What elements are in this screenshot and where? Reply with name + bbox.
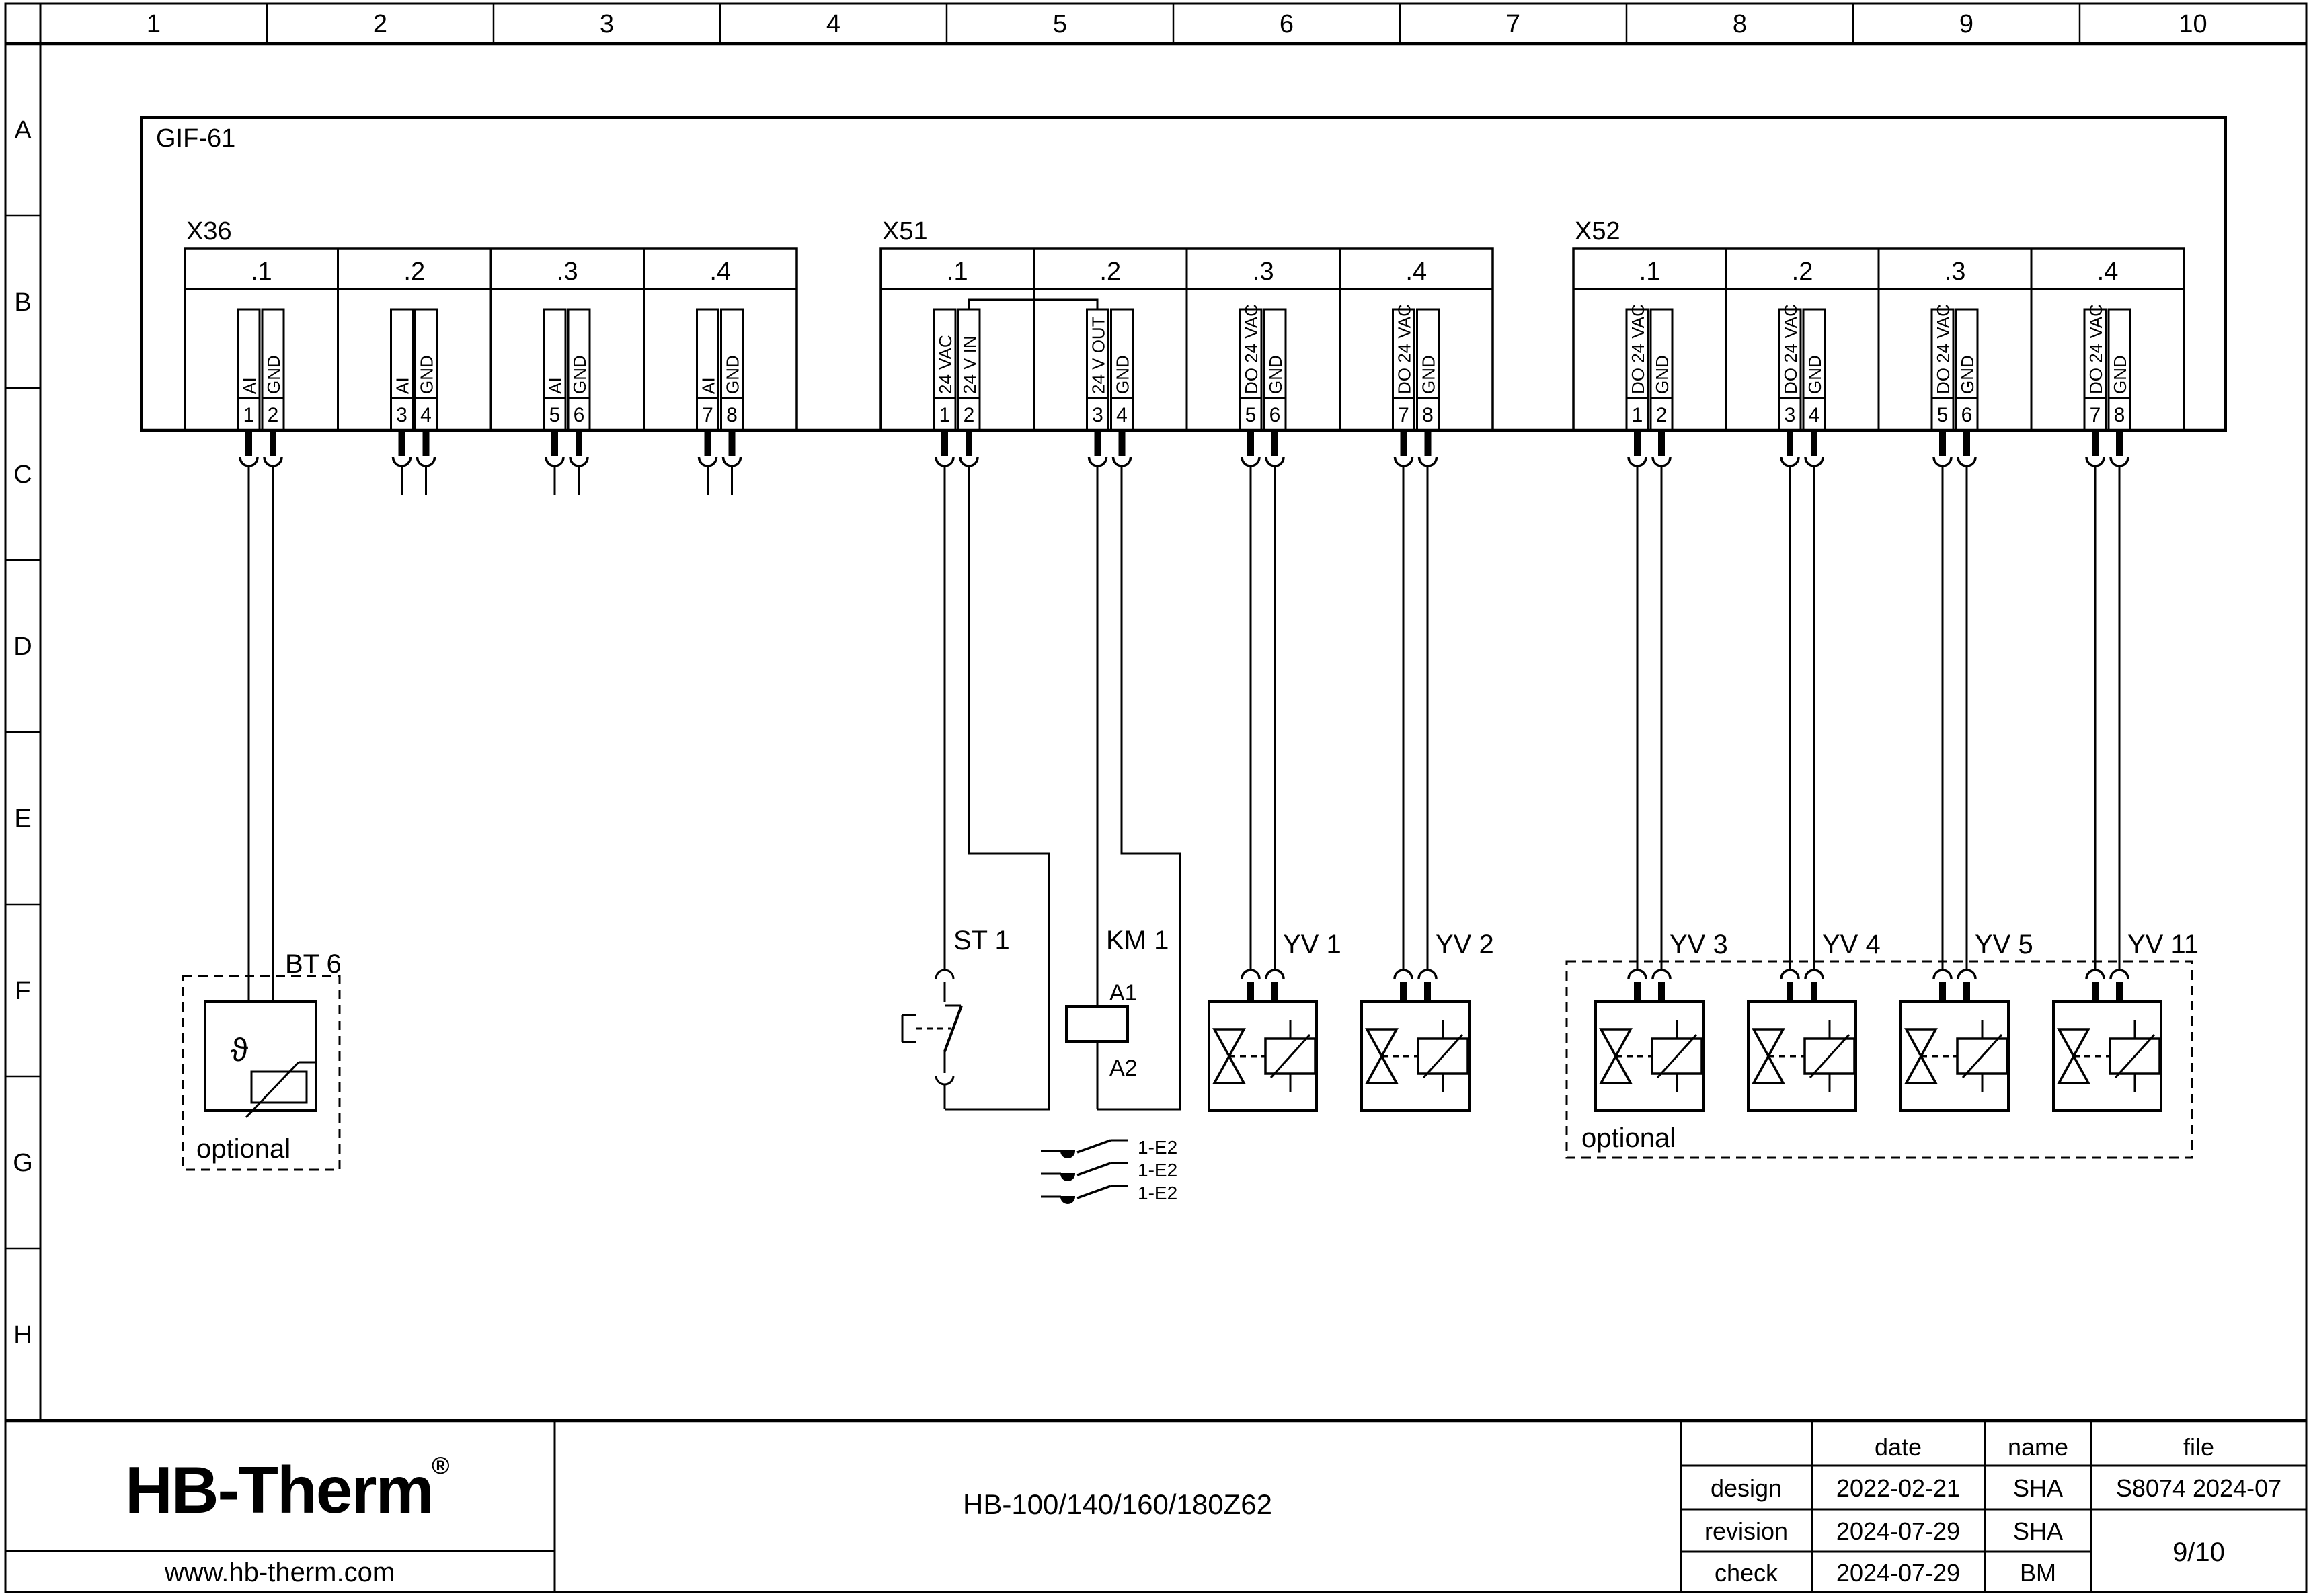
female-socket — [936, 457, 953, 466]
km1-aux-contact: 1-E2 — [1041, 1183, 1177, 1203]
pin-signal: DO 24 VAC — [1395, 304, 1415, 394]
pin-signal: GND — [417, 355, 437, 394]
optional-note: optional — [1581, 1123, 1676, 1153]
row-header: B — [14, 288, 31, 317]
section-label: .1 — [1639, 257, 1661, 286]
connector-label: X51 — [882, 217, 928, 245]
pin-number: 5 — [549, 404, 561, 426]
pin-signal: GND — [2110, 355, 2130, 394]
connector-blocks: X36.1AI1GND2.2AI3GND4.3AI5GND6.4AI7GND8X… — [185, 217, 2184, 495]
pin-signal: DO 24 VAC — [1780, 304, 1801, 394]
female-socket — [1629, 970, 1646, 979]
row-header: H — [13, 1321, 32, 1349]
valve-label: YV 1 — [1283, 930, 1341, 959]
contact-blade — [1077, 1163, 1111, 1175]
female-socket — [393, 457, 411, 466]
solenoid-slash — [1810, 1035, 1849, 1078]
female-socket — [936, 970, 953, 979]
thermistor-slash — [246, 1062, 299, 1117]
pin-number: 6 — [574, 404, 585, 426]
row-header: A — [14, 116, 32, 145]
valve-label: YV 2 — [1436, 930, 1494, 959]
connector-x51: X51.124 VAC124 V IN2.224 V OUT3GND4.3DO … — [881, 217, 1493, 466]
column-header: 1 — [147, 10, 161, 38]
female-socket — [570, 457, 588, 466]
female-socket — [960, 457, 978, 466]
section-label: .3 — [557, 257, 578, 286]
pin-signal: AI — [699, 377, 719, 394]
connector-label: X52 — [1575, 217, 1620, 245]
km1-aux-contact: 1-E2 — [1041, 1160, 1177, 1181]
bt6-label: BT 6 — [285, 949, 342, 979]
female-socket — [546, 457, 563, 466]
female-socket — [1958, 457, 1975, 466]
female-socket — [240, 457, 258, 466]
pin-signal: AI — [393, 377, 413, 394]
pin-number: 1 — [1632, 404, 1643, 426]
pin-number: 7 — [702, 404, 713, 426]
pin-signal: DO 24 VAC — [1933, 304, 1953, 394]
pin-number: 1 — [939, 404, 951, 426]
solenoid-slash — [2115, 1035, 2154, 1078]
pin-number: 3 — [1785, 404, 1796, 426]
female-socket — [1113, 457, 1131, 466]
row-label-revision: revision — [1705, 1517, 1788, 1545]
contact-blade — [1077, 1140, 1111, 1152]
km1-contact-refs: 1-E21-E21-E2 — [1041, 1137, 1177, 1203]
check-date: 2024-07-29 — [1836, 1559, 1960, 1587]
bt6-optional-note: optional — [196, 1134, 290, 1164]
column-header: 6 — [1280, 10, 1294, 38]
female-socket — [1934, 970, 1951, 979]
gif61-box — [141, 118, 2226, 430]
st1-thermostat: ST 1 — [902, 466, 1049, 1109]
revision-name: SHA — [2013, 1517, 2063, 1545]
column-header: 8 — [1733, 10, 1747, 38]
km1-coil — [1066, 1006, 1128, 1041]
col-header-name: name — [2008, 1433, 2068, 1461]
column-header: 7 — [1506, 10, 1520, 38]
pin-signal: GND — [1652, 355, 1672, 394]
section-label: .1 — [947, 257, 968, 286]
pin-number: 4 — [1116, 404, 1128, 426]
pin-signal: DO 24 VAC — [1628, 304, 1648, 394]
st1-label: ST 1 — [953, 926, 1010, 955]
contact-bridge — [1061, 1197, 1074, 1203]
section-label: .4 — [709, 257, 731, 286]
valve-5: YV 5 — [1901, 466, 2033, 1111]
female-socket — [2086, 457, 2104, 466]
pin-signal: GND — [264, 355, 284, 394]
column-header: 5 — [1053, 10, 1067, 38]
pin-signal: GND — [570, 355, 590, 394]
female-socket — [1419, 970, 1436, 979]
row-label-design: design — [1711, 1474, 1782, 1502]
pin-signal: GND — [1805, 355, 1825, 394]
row-header: E — [14, 805, 31, 833]
female-socket — [1958, 970, 1975, 979]
column-header: 4 — [826, 10, 840, 38]
gif61-module: GIF-61 — [141, 118, 2226, 430]
row-header: G — [13, 1149, 33, 1177]
connector-label: X36 — [186, 217, 232, 245]
female-socket — [1242, 457, 1259, 466]
section-label: .1 — [251, 257, 272, 286]
pin-number: 5 — [1937, 404, 1949, 426]
pin-signal: GND — [1265, 355, 1286, 394]
title-block: HB-Therm ® www.hb-therm.com HB-100/140/1… — [5, 1421, 2306, 1592]
female-socket — [2086, 970, 2104, 979]
pin-number: 5 — [1245, 404, 1257, 426]
column-header: 10 — [2179, 10, 2207, 38]
pin-number: 4 — [1809, 404, 1820, 426]
registered-mark: ® — [432, 1451, 449, 1479]
female-socket — [1266, 457, 1284, 466]
gif61-label: GIF-61 — [156, 124, 235, 153]
theta-symbol: ϑ — [231, 1033, 248, 1068]
row-header: D — [13, 633, 32, 661]
valve-label: YV 4 — [1822, 930, 1881, 959]
pin-number: 6 — [1269, 404, 1281, 426]
section-label: .3 — [1253, 257, 1274, 286]
valve-label: YV 3 — [1670, 930, 1728, 959]
revision-date: 2024-07-29 — [1836, 1517, 1960, 1545]
connector-x52: X52.1DO 24 VAC1GND2.2DO 24 VAC3GND4.3DO … — [1573, 217, 2184, 466]
design-date: 2022-02-21 — [1836, 1474, 1960, 1502]
female-socket — [1266, 970, 1284, 979]
col-header-date: date — [1875, 1433, 1922, 1461]
page-number: 9/10 — [2172, 1538, 2225, 1567]
solenoid-slash — [1657, 1035, 1696, 1078]
pin-number: 8 — [2114, 404, 2125, 426]
file-value: S8074 2024-07 — [2116, 1474, 2281, 1502]
section-label: .2 — [403, 257, 425, 286]
female-socket — [1629, 457, 1646, 466]
km1-return-wire — [1097, 466, 1180, 1109]
pin-number: 4 — [420, 404, 432, 426]
section-label: .4 — [1405, 257, 1427, 286]
solenoid-valves: YV 1YV 2YV 3YV 4YV 5YV 11 — [1209, 466, 2199, 1111]
section-label: .3 — [1945, 257, 1966, 286]
solenoid-slash — [1271, 1035, 1310, 1078]
pin-number: 3 — [396, 404, 407, 426]
female-socket — [1419, 457, 1437, 466]
contact-ref-label: 1-E2 — [1138, 1183, 1177, 1203]
section-label: .4 — [2097, 257, 2119, 286]
valve-1: YV 1 — [1209, 466, 1341, 1111]
female-socket — [2111, 457, 2128, 466]
column-header: 9 — [1959, 10, 1973, 38]
hb-therm-logo: HB-Therm — [125, 1453, 433, 1527]
pin-number: 6 — [1961, 404, 1973, 426]
check-name: BM — [2020, 1559, 2056, 1587]
pin-number: 1 — [243, 404, 255, 426]
pin-number: 2 — [1656, 404, 1668, 426]
female-socket — [1653, 457, 1670, 466]
female-socket — [264, 457, 282, 466]
valve-3: YV 3 — [1596, 466, 1728, 1111]
contact-ref-label: 1-E2 — [1138, 1160, 1177, 1181]
female-socket — [1934, 457, 1951, 466]
pin-signal: AI — [545, 377, 565, 394]
female-socket — [1089, 457, 1107, 466]
column-header: 2 — [373, 10, 387, 38]
contact-bridge — [1061, 1151, 1074, 1158]
pin-signal: 24 V IN — [959, 335, 980, 394]
col-header-file: file — [2183, 1433, 2214, 1461]
female-socket — [1242, 970, 1259, 979]
female-socket — [723, 457, 741, 466]
female-socket — [1805, 970, 1823, 979]
bt6-box — [205, 1002, 316, 1111]
document-title: HB-100/140/160/180Z62 — [963, 1488, 1272, 1520]
km1-aux-contact: 1-E2 — [1041, 1137, 1177, 1158]
female-socket — [2111, 970, 2128, 979]
female-socket — [418, 457, 435, 466]
pin-signal: DO 24 VAC — [2086, 304, 2106, 394]
contact-bridge — [1061, 1174, 1074, 1181]
female-socket — [699, 457, 717, 466]
pin-signal: GND — [1113, 355, 1133, 394]
ruler-labels: 12345678910ABCDEFGH — [5, 3, 2207, 1349]
valve-label: YV 11 — [2127, 930, 2199, 959]
pin-number: 7 — [1398, 404, 1409, 426]
contact-blade — [945, 1006, 962, 1051]
pin-signal: AI — [239, 377, 260, 394]
female-socket — [1781, 457, 1799, 466]
pin-signal: DO 24 VAC — [1241, 304, 1261, 394]
pin-signal: GND — [1419, 355, 1439, 394]
outer-border — [5, 3, 2306, 1592]
pin-signal: 24 V OUT — [1089, 316, 1109, 394]
solenoid-slash — [1423, 1035, 1462, 1078]
female-socket — [936, 1076, 953, 1084]
section-label: .2 — [1099, 257, 1121, 286]
contact-ref-label: 1-E2 — [1138, 1137, 1177, 1158]
pin-number: 3 — [1092, 404, 1103, 426]
pin-number: 2 — [964, 404, 975, 426]
thermistor-symbol — [251, 1072, 307, 1103]
pin-number: 8 — [726, 404, 738, 426]
pin-signal: 24 VAC — [935, 335, 955, 394]
design-name: SHA — [2013, 1474, 2063, 1502]
valve-6: YV 11 — [2053, 466, 2199, 1111]
valve-2: YV 2 — [1362, 466, 1494, 1111]
contact-blade — [1077, 1186, 1111, 1198]
connector-x36: X36.1AI1GND2.2AI3GND4.3AI5GND6.4AI7GND8 — [185, 217, 797, 495]
valve-4: YV 4 — [1748, 466, 1881, 1111]
pin-number: 2 — [268, 404, 279, 426]
km1-a1-terminal: A1 — [1109, 980, 1138, 1006]
row-header: F — [15, 977, 30, 1005]
drawing-frame: 12345678910ABCDEFGH — [5, 3, 2306, 1592]
pin-signal: GND — [1957, 355, 1977, 394]
row-label-check: check — [1715, 1559, 1778, 1587]
bt6-sensor: BT 6 ϑ optional — [183, 466, 342, 1170]
female-socket — [1653, 970, 1670, 979]
female-socket — [1395, 457, 1413, 466]
female-socket — [1805, 457, 1823, 466]
pin-number: 8 — [1422, 404, 1434, 426]
km1-contactor: KM 1 A1 A2 — [1066, 466, 1180, 1109]
column-header: 3 — [600, 10, 614, 38]
schematic-page: 12345678910ABCDEFGH GIF-61 X36.1AI1GND2.… — [0, 0, 2311, 1596]
solenoid-slash — [1963, 1035, 2002, 1078]
female-socket — [1781, 970, 1799, 979]
pin-signal: GND — [723, 355, 743, 394]
section-label: .2 — [1792, 257, 1813, 286]
km1-a2-terminal: A2 — [1109, 1055, 1138, 1081]
female-socket — [1395, 970, 1412, 979]
km1-label: KM 1 — [1106, 926, 1169, 955]
company-url: www.hb-therm.com — [164, 1558, 395, 1587]
row-header: C — [13, 461, 32, 489]
pin-number: 7 — [2090, 404, 2101, 426]
valve-label: YV 5 — [1975, 930, 2033, 959]
